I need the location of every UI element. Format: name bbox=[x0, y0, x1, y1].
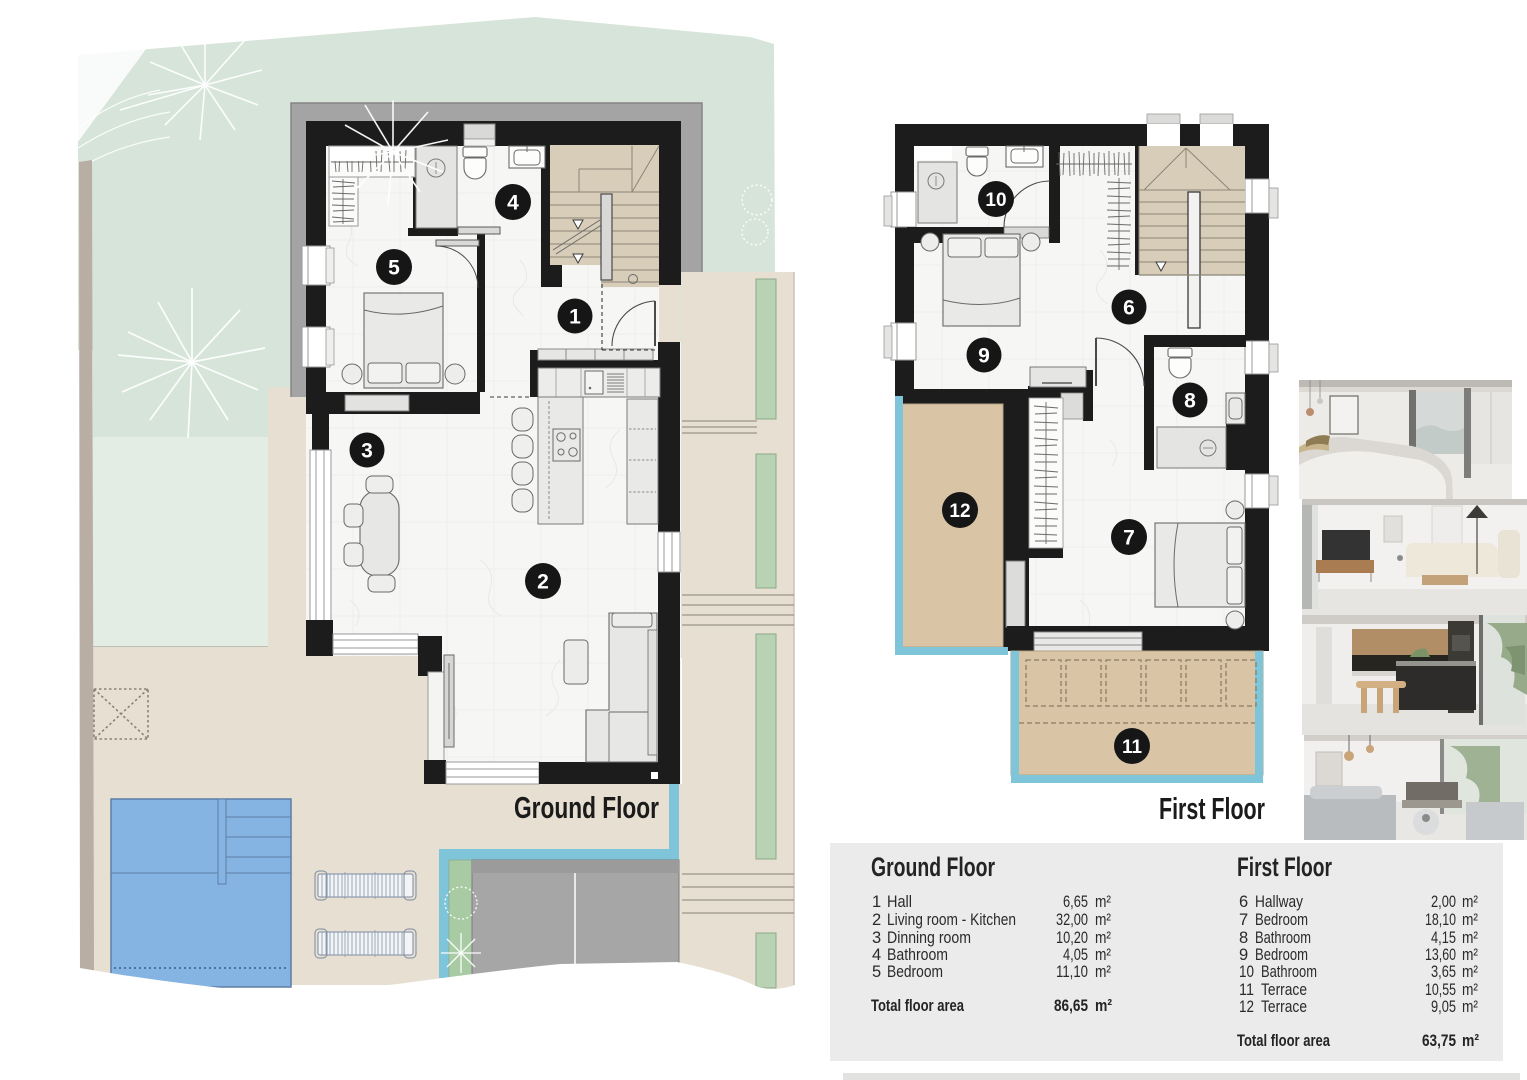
svg-text:13,60: 13,60 bbox=[1425, 946, 1456, 964]
svg-text:8: 8 bbox=[1184, 390, 1196, 413]
svg-text:m²: m² bbox=[1462, 929, 1478, 947]
svg-text:63,75: 63,75 bbox=[1422, 1032, 1456, 1050]
svg-text:5: 5 bbox=[388, 257, 400, 280]
svg-text:m²: m² bbox=[1462, 963, 1478, 981]
svg-text:9,05: 9,05 bbox=[1431, 998, 1456, 1016]
svg-text:9: 9 bbox=[1239, 946, 1248, 964]
svg-text:10,55: 10,55 bbox=[1425, 981, 1456, 999]
svg-text:5: 5 bbox=[872, 963, 881, 981]
svg-text:10: 10 bbox=[985, 190, 1006, 211]
svg-text:2: 2 bbox=[537, 571, 549, 594]
svg-text:Total floor area: Total floor area bbox=[1237, 1032, 1331, 1050]
svg-text:11: 11 bbox=[1122, 737, 1143, 758]
svg-text:11: 11 bbox=[1239, 981, 1254, 999]
svg-text:6,65: 6,65 bbox=[1063, 893, 1088, 911]
svg-text:4: 4 bbox=[507, 192, 519, 215]
svg-text:2: 2 bbox=[872, 911, 881, 929]
svg-text:m²: m² bbox=[1095, 963, 1111, 981]
svg-text:m²: m² bbox=[1095, 929, 1111, 947]
svg-text:m²: m² bbox=[1462, 946, 1478, 964]
svg-text:m²: m² bbox=[1462, 1032, 1479, 1050]
svg-text:Total floor area: Total floor area bbox=[871, 997, 965, 1015]
svg-text:18,10: 18,10 bbox=[1425, 911, 1456, 929]
svg-text:Terrace: Terrace bbox=[1261, 981, 1307, 999]
svg-text:Ground Floor: Ground Floor bbox=[514, 790, 659, 825]
svg-text:6: 6 bbox=[1123, 297, 1135, 320]
svg-text:9: 9 bbox=[978, 345, 990, 368]
svg-text:86,65: 86,65 bbox=[1054, 997, 1088, 1015]
svg-text:m²: m² bbox=[1095, 997, 1112, 1015]
svg-text:7: 7 bbox=[1239, 911, 1248, 929]
svg-text:6: 6 bbox=[1239, 893, 1248, 911]
svg-text:m²: m² bbox=[1462, 981, 1478, 999]
svg-text:3,65: 3,65 bbox=[1431, 963, 1456, 981]
svg-text:m²: m² bbox=[1095, 911, 1111, 929]
svg-text:1: 1 bbox=[872, 893, 881, 911]
svg-text:4: 4 bbox=[872, 946, 881, 964]
svg-text:Bedroom: Bedroom bbox=[887, 963, 943, 981]
svg-text:Bedroom: Bedroom bbox=[1255, 946, 1308, 964]
svg-text:8: 8 bbox=[1239, 929, 1248, 947]
svg-text:Hallway: Hallway bbox=[1255, 893, 1304, 911]
svg-text:12: 12 bbox=[949, 501, 970, 522]
svg-text:First Floor: First Floor bbox=[1237, 852, 1332, 882]
svg-text:3: 3 bbox=[872, 929, 881, 947]
svg-text:m²: m² bbox=[1462, 998, 1478, 1016]
svg-text:10,20: 10,20 bbox=[1056, 929, 1088, 947]
svg-text:2,00: 2,00 bbox=[1431, 893, 1456, 911]
svg-text:Ground Floor: Ground Floor bbox=[871, 852, 995, 882]
svg-text:10: 10 bbox=[1239, 963, 1254, 981]
svg-text:Bathroom: Bathroom bbox=[1261, 963, 1317, 981]
svg-text:m²: m² bbox=[1095, 893, 1111, 911]
svg-text:3: 3 bbox=[361, 440, 373, 463]
svg-text:4,05: 4,05 bbox=[1063, 946, 1088, 964]
svg-text:1: 1 bbox=[569, 306, 581, 329]
svg-text:m²: m² bbox=[1095, 946, 1111, 964]
svg-text:Bathroom: Bathroom bbox=[1255, 929, 1311, 947]
svg-text:Hall: Hall bbox=[887, 893, 912, 911]
svg-text:4,15: 4,15 bbox=[1431, 929, 1456, 947]
svg-text:Dinning room: Dinning room bbox=[887, 929, 971, 947]
svg-text:7: 7 bbox=[1123, 527, 1135, 550]
svg-text:Living room - Kitchen: Living room - Kitchen bbox=[887, 911, 1016, 929]
svg-text:11,10: 11,10 bbox=[1056, 963, 1088, 981]
svg-text:First Floor: First Floor bbox=[1159, 791, 1265, 826]
svg-text:Bathroom: Bathroom bbox=[887, 946, 948, 964]
svg-text:12: 12 bbox=[1239, 998, 1254, 1016]
svg-text:32,00: 32,00 bbox=[1056, 911, 1088, 929]
svg-text:m²: m² bbox=[1462, 893, 1478, 911]
svg-text:Bedroom: Bedroom bbox=[1255, 911, 1308, 929]
svg-text:m²: m² bbox=[1462, 911, 1478, 929]
svg-text:Terrace: Terrace bbox=[1261, 998, 1307, 1016]
